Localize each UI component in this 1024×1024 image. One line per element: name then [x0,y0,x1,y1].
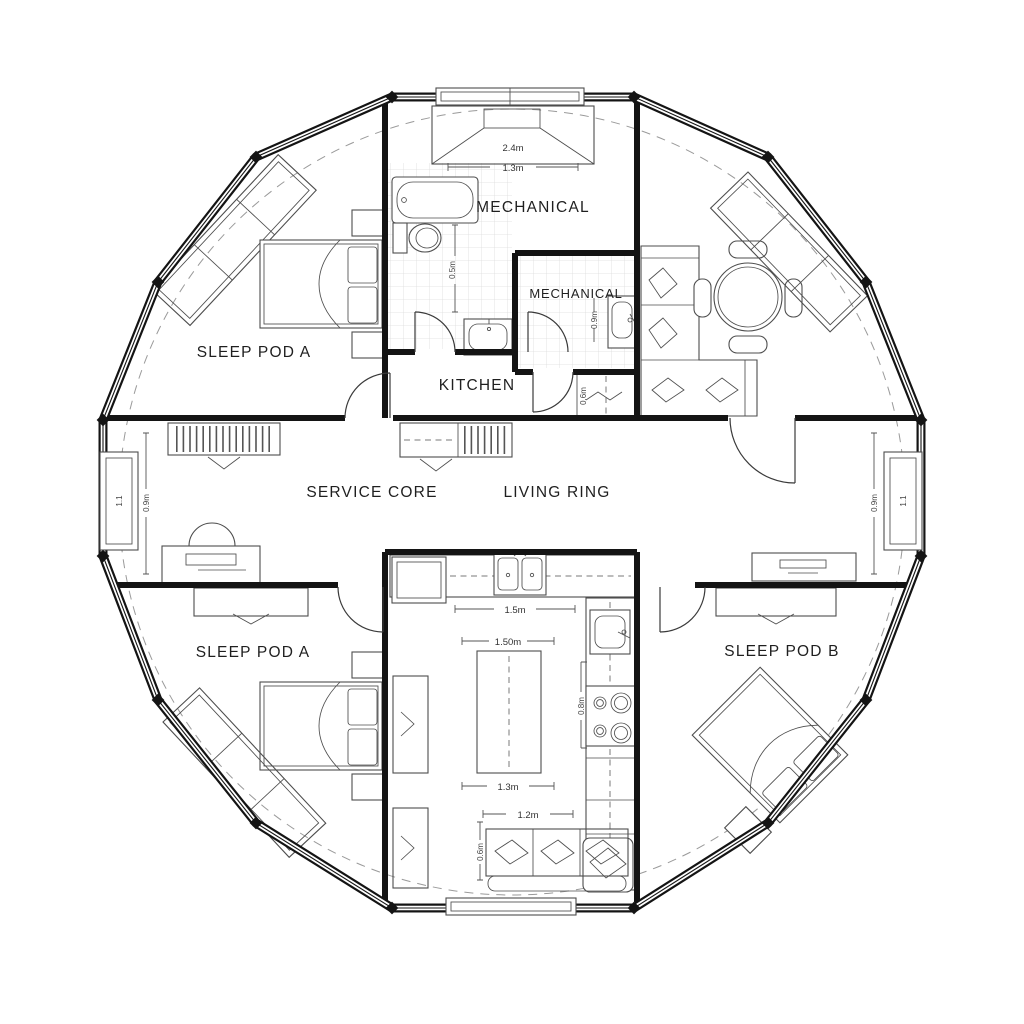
dining-table [694,241,802,353]
double-sink [494,553,546,595]
door-pod-a-bottom [338,587,383,632]
great-room-furniture [390,553,635,892]
label-sleep-pod-a-top: SLEEP POD A [197,344,312,361]
nightstand-top-left-1 [352,210,386,236]
vent-hood [432,106,594,164]
label-service-core: SERVICE CORE [306,484,437,501]
fridge [392,557,446,603]
window-top [436,88,584,105]
armchair [583,838,633,892]
window-bottom [446,898,576,915]
dim-vent-width: 2.4m [502,143,523,154]
dim-counter-length: 1.5m [504,605,525,616]
living-pod-furniture [641,172,867,416]
pod-a-top-furniture [152,155,386,358]
door-kitchen [533,372,573,412]
bathtub [392,177,478,223]
label-sleep-pod-a-bottom: SLEEP POD A [196,644,311,661]
desk-chair [189,523,235,546]
stove [586,686,635,746]
nightstand-bottom-left-1 [352,652,386,678]
dresser-service-right [752,553,856,581]
nightstand-top-left-2 [352,332,386,358]
dim-sofa-depth: 0.6m [476,843,485,861]
label-sleep-pod-b: SLEEP POD B [724,643,839,660]
dim-hall-closet: 0.6m [579,387,588,405]
mechanical-sink [608,296,637,348]
closet-rail-center [400,423,512,471]
pod-a-bottom-furniture [163,588,386,857]
dim-sofa-length: 1.2m [517,810,538,821]
floor-plan-svg: SLEEP POD A MECHANICAL MECHANICAL KITCHE… [0,0,1024,1024]
dim-window-right-height: 0.9m [870,494,879,512]
dining-chair-bottom [729,336,767,353]
bed-top-left [260,240,382,328]
door-living-ring [730,418,795,483]
nightstand-bottom-left-2 [352,774,386,800]
tall-cabinet-2 [393,808,428,888]
dim-window-left-height: 0.9m [142,494,151,512]
floor-plan-page: SLEEP POD A MECHANICAL MECHANICAL KITCHE… [0,0,1024,1024]
dim-window-right-width: 1.1 [899,495,908,507]
dining-chair-top [729,241,767,258]
dining-chair-left [694,279,711,317]
dining-chair-right [785,279,802,317]
tall-cabinet-1 [393,676,428,773]
label-kitchen: KITCHEN [439,377,515,394]
desk-service-left [162,523,260,583]
dim-mech-sink: 0.9m [590,311,599,329]
dim-range-run: 0.8m [577,697,586,715]
bed-bottom-left [260,682,382,770]
island [477,651,541,773]
label-mechanical-upper: MECHANICAL [476,199,590,216]
label-living-ring: LIVING RING [503,484,610,501]
dim-bath-clearance: 0.5m [448,261,457,279]
toilet [393,223,441,253]
desk-pod-b [716,588,836,624]
door-pod-b [660,587,705,632]
label-mechanical-inner: MECHANICAL [529,286,622,301]
dim-vent-opening: 1.3m [502,163,523,174]
dim-island-length: 1.50m [495,637,521,648]
dim-window-left-width: 1.1 [115,495,124,507]
closet-rail-left [168,423,280,469]
dim-island-width: 1.3m [497,782,518,793]
desk-pod-a [194,588,308,624]
prep-sink [590,610,630,654]
